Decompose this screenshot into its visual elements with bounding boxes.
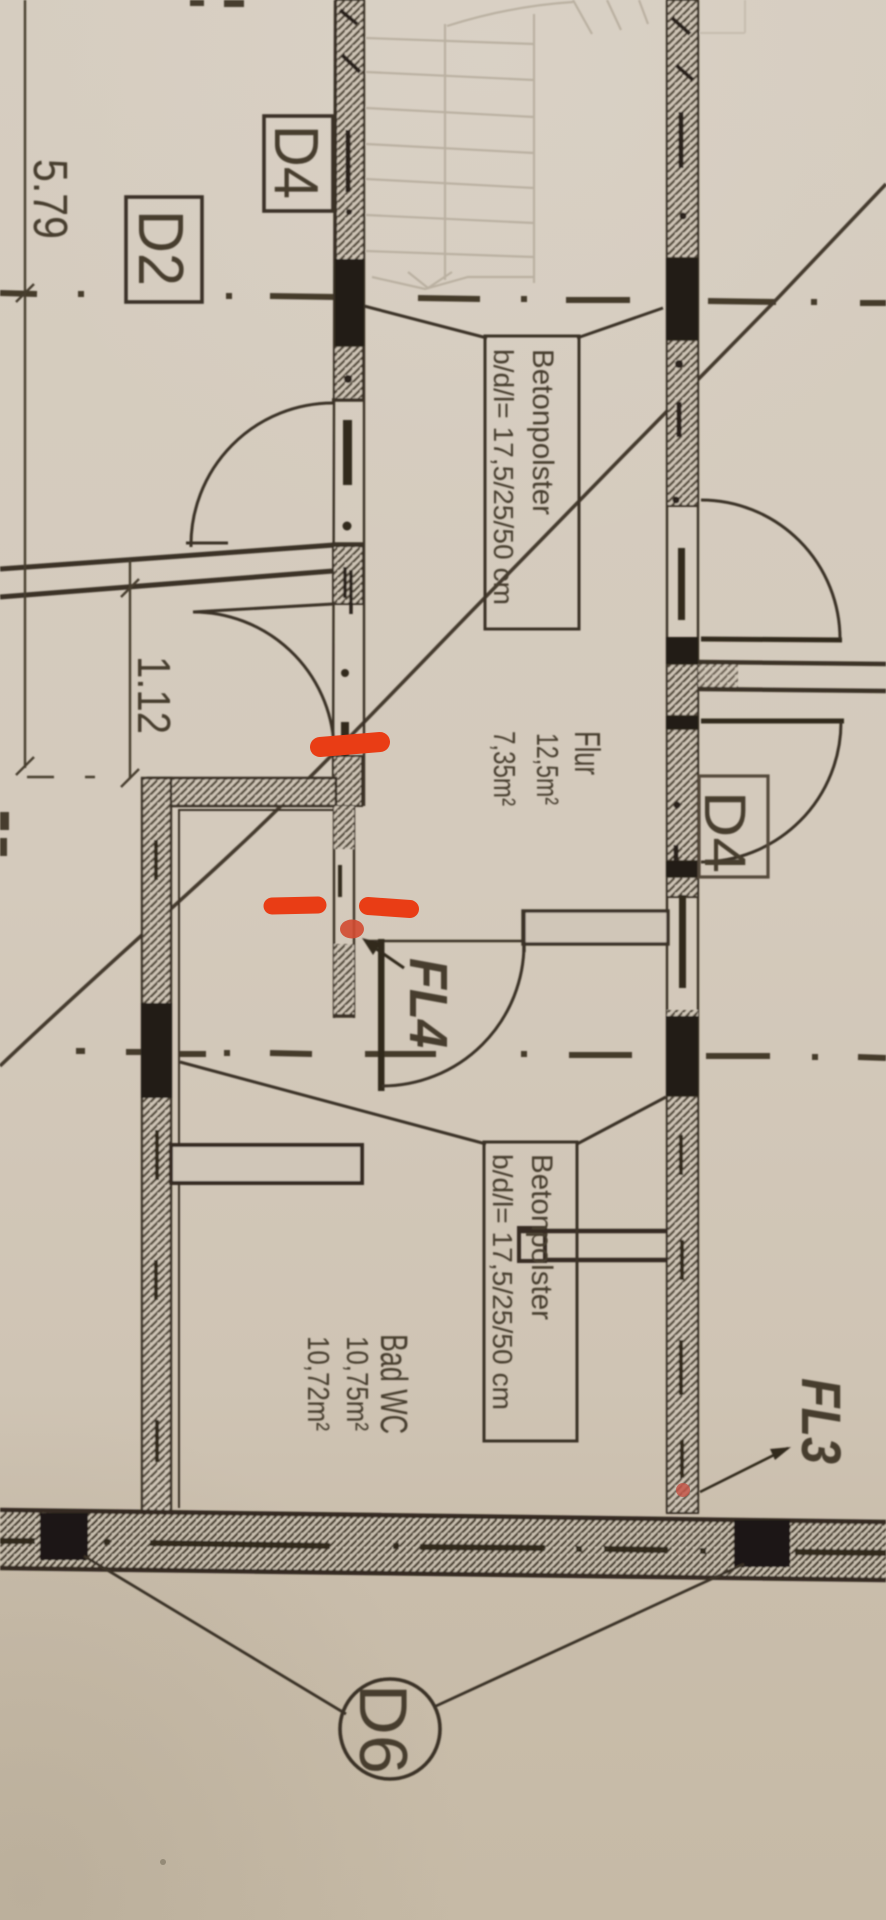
svg-text:b/d/l= 17,5/25/50 cm: b/d/l= 17,5/25/50 cm <box>488 349 519 605</box>
svg-text:FL3: FL3 <box>790 1378 853 1464</box>
svg-text:b/d/l= 17,5/25/50 cm: b/d/l= 17,5/25/50 cm <box>487 1154 518 1410</box>
svg-text:7,35m²: 7,35m² <box>487 731 522 806</box>
svg-text:5.79: 5.79 <box>23 159 76 239</box>
svg-text:1.12: 1.12 <box>128 656 180 734</box>
svg-text:D4: D4 <box>261 125 330 199</box>
svg-text:Betonpolster: Betonpolster <box>525 1154 558 1320</box>
svg-text:D4: D4 <box>692 791 757 873</box>
svg-text:Flur: Flur <box>567 731 608 775</box>
svg-text:10,75m²: 10,75m² <box>340 1336 375 1431</box>
svg-text:D6: D6 <box>345 1684 421 1774</box>
svg-text:D2: D2 <box>125 210 197 286</box>
svg-text:12,5m²: 12,5m² <box>530 733 565 805</box>
svg-text:FL4: FL4 <box>398 958 458 1048</box>
svg-text:Betonpolster: Betonpolster <box>526 349 559 515</box>
svg-text:Bad WC: Bad WC <box>372 1334 414 1434</box>
svg-text:10,72m²: 10,72m² <box>301 1336 336 1431</box>
